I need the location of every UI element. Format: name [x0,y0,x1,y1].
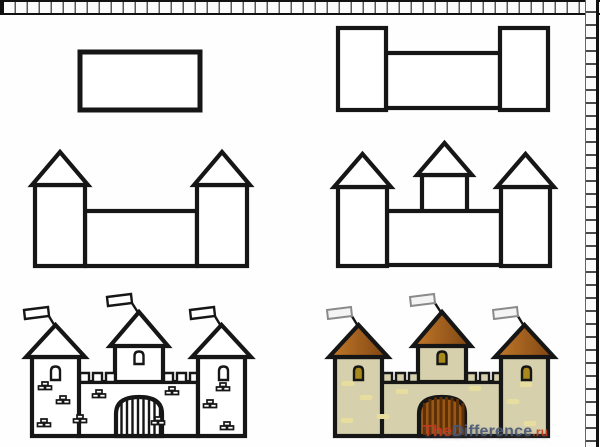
wall-rectangle [386,53,500,108]
center-roof [413,312,471,346]
wall-rectangle [85,211,197,266]
center-flag-icon [107,294,132,306]
watermark-tld: .ru [532,425,548,439]
left-roof [26,325,85,357]
left-flag-icon [24,307,49,319]
castle-drawing-steps-illustration [0,0,600,447]
center-window [135,352,144,365]
left-tower [338,187,387,266]
right-flag-icon [493,307,518,319]
step-4-center-tower [334,143,554,266]
left-roof [334,154,391,187]
center-roof [417,143,472,175]
right-tower [197,185,247,266]
step-6-colored-castle [327,294,554,436]
left-roof [32,152,88,185]
left-window [354,367,363,381]
left-window [51,367,60,381]
right-tower [500,28,548,110]
site-watermark: TheDifference.ru [423,423,548,441]
step-2-two-towers [338,28,548,110]
right-roof [194,152,250,185]
left-flag-icon [327,307,352,319]
drawing-tutorial-canvas: TheDifference.ru [0,0,600,447]
left-tower [35,185,85,266]
wall-rectangle [80,52,200,110]
right-tower [501,187,550,266]
right-window [522,367,531,381]
step-3-tower-roofs [32,152,250,266]
left-roof [329,325,388,357]
center-roof [110,312,168,346]
right-roof [495,325,554,357]
wall-rectangle [387,211,501,265]
step-1-base-rectangle [80,52,200,110]
center-window [438,352,447,365]
right-window [219,367,228,381]
right-flag-icon [190,307,215,319]
step-5-outline-castle [24,294,251,436]
right-roof [192,325,251,357]
watermark-the: The [423,423,452,440]
left-tower [338,28,386,110]
right-roof [497,154,554,187]
center-flag-icon [410,294,435,306]
center-tower [422,175,467,213]
watermark-difference: Difference [452,423,532,440]
